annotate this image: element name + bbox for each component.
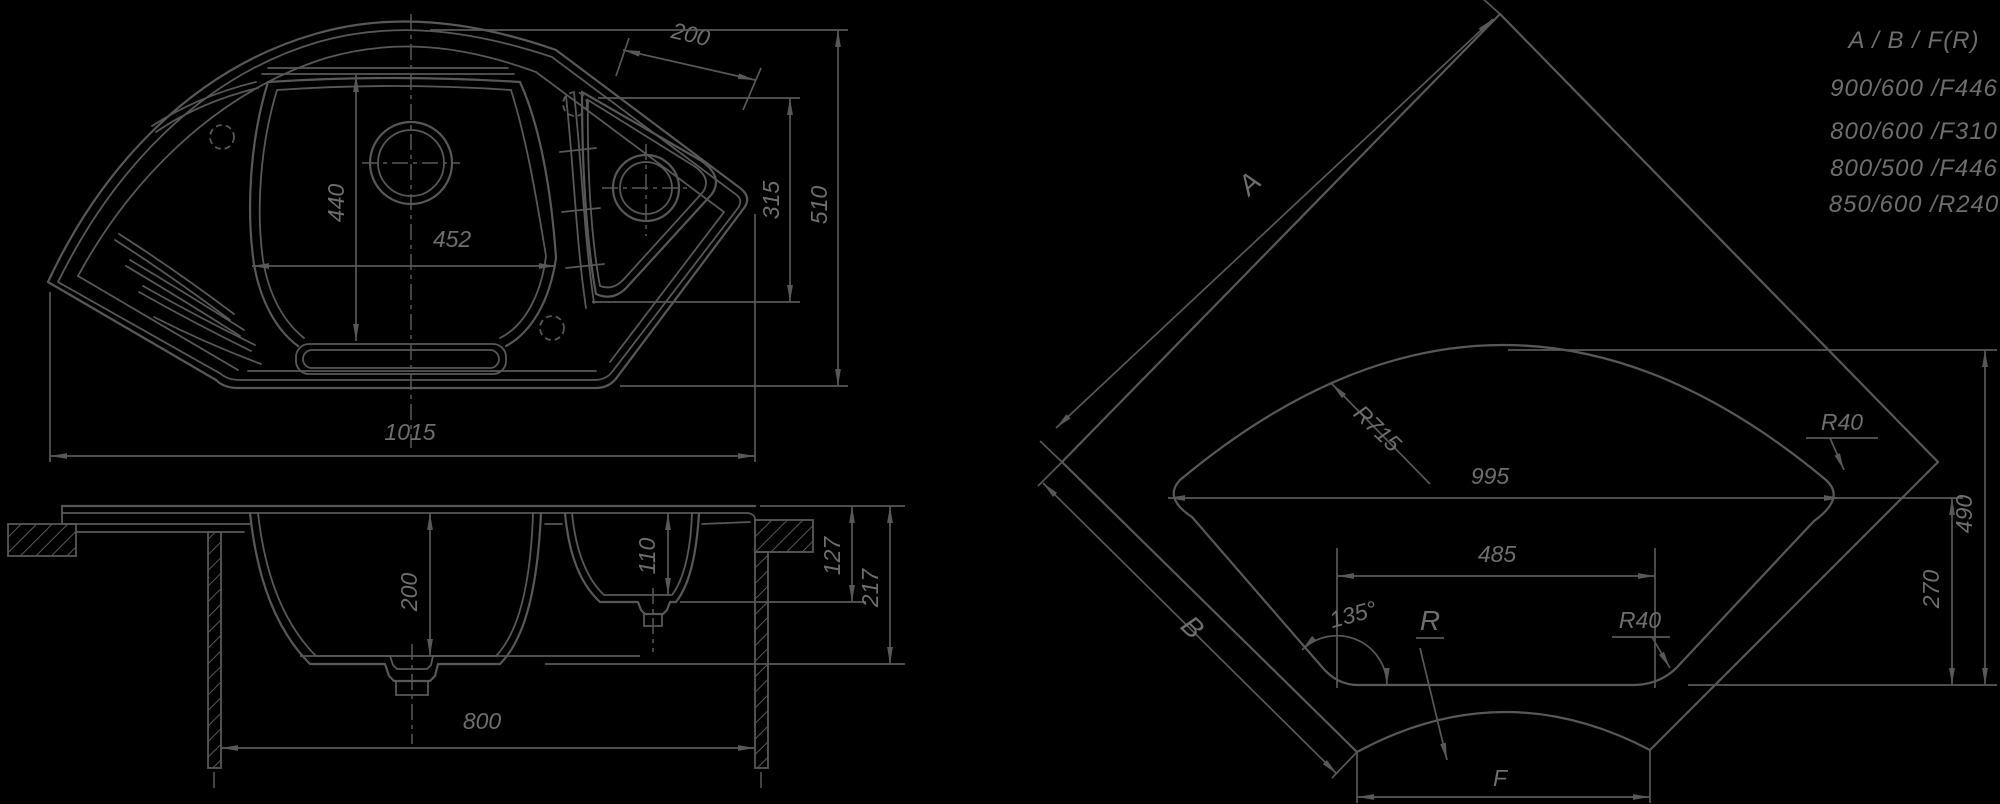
section-rim-underside-right xyxy=(702,522,750,524)
drainer-groove-1b xyxy=(119,234,234,314)
dim-200s-label: 200 xyxy=(396,573,422,613)
dim-135-label: 135° xyxy=(1327,596,1380,633)
dim-b-label: B xyxy=(1175,610,1210,645)
dim-127-label: 127 xyxy=(819,536,845,576)
tap-hole-left xyxy=(210,125,234,149)
size-table: A / B / F(R) 900/600 /F446 800/600 /F310… xyxy=(1829,27,1999,218)
dim-200-label: 200 xyxy=(668,17,712,51)
dim-b-ext-bottom xyxy=(1332,752,1357,778)
sink-footprint xyxy=(1174,345,1834,685)
dim-a-ext-bottom xyxy=(1040,441,1062,462)
dim-800-label: 800 xyxy=(463,708,502,734)
dim-r40-top-label: R40 xyxy=(1821,409,1863,435)
section-rim-right-end xyxy=(748,513,755,520)
drainer-groove-3b xyxy=(143,286,255,345)
section-view: 200 110 127 217 800 xyxy=(8,506,905,792)
dim-r40-top-leader xyxy=(1830,438,1844,470)
dim-r-label: R xyxy=(1420,605,1440,636)
countertop-section-left xyxy=(8,524,76,556)
dim-a-line xyxy=(1056,19,1493,428)
dim-490-label: 490 xyxy=(1951,495,1977,534)
plan-outline-inner xyxy=(58,30,740,380)
dim-110-label: 110 xyxy=(634,537,660,574)
dim-200-ext-left xyxy=(616,38,629,76)
plan-view: 200 440 452 315 510 1015 xyxy=(48,14,848,462)
plan-deck-left-edge xyxy=(78,276,238,370)
size-table-row-3: 800/500 /F446 xyxy=(1830,155,1998,182)
drainer-groove-2b xyxy=(130,260,244,330)
diamond-edge-bottom-right xyxy=(1650,462,1938,750)
dim-200-ext-right xyxy=(743,68,761,110)
dim-200-line xyxy=(623,50,755,80)
technical-drawing-page: 200 440 452 315 510 1015 xyxy=(0,0,2000,804)
dim-217-label: 217 xyxy=(857,568,883,609)
tap-hole-right-bottom xyxy=(540,316,564,340)
size-table-header: A / B / F(R) xyxy=(1846,27,1979,54)
cabinet-wall-right xyxy=(755,552,768,768)
small-bowl-outer xyxy=(582,92,716,297)
size-table-row-1: 900/600 /F446 xyxy=(1830,75,1998,102)
wing-ridge xyxy=(156,88,258,132)
section-small-bowl-outer xyxy=(565,513,699,614)
dim-r715-label: R715 xyxy=(1349,400,1407,457)
diamond-edge-a xyxy=(1062,14,1500,462)
dim-440-label: 440 xyxy=(323,184,349,223)
main-bowl-outer xyxy=(250,78,556,346)
main-bowl-floor-inner xyxy=(303,350,499,368)
dim-a-ext-top xyxy=(1481,0,1500,14)
dim-a-label: A xyxy=(1230,166,1266,203)
size-table-row-2: 800/600 /F310 xyxy=(1830,118,1998,145)
section-small-bowl-inner xyxy=(572,513,692,595)
dim-r40-bottom-label: R40 xyxy=(1619,607,1661,633)
dim-270-label: 270 xyxy=(1918,570,1944,610)
front-arc xyxy=(1357,712,1650,752)
size-table-row-4: 850/600 /R240 xyxy=(1829,191,1999,218)
countertop-section-right xyxy=(755,520,813,552)
dim-485-label: 485 xyxy=(1478,541,1517,567)
divider-tick-1 xyxy=(560,148,596,152)
dim-r-leader xyxy=(1420,648,1447,760)
cabinet-wall-left xyxy=(208,532,221,768)
dim-135-arc xyxy=(1302,636,1387,685)
dim-315-label: 315 xyxy=(758,181,784,220)
divider-tick-2 xyxy=(562,208,600,212)
dim-510-label: 510 xyxy=(806,186,832,225)
dim-b-ext-top xyxy=(1038,462,1062,486)
divider-tick-3 xyxy=(566,264,604,268)
dim-452-label: 452 xyxy=(433,226,472,252)
dim-995-label: 995 xyxy=(1471,463,1510,489)
diamond-edge-b xyxy=(1062,462,1357,752)
sink-technical-drawing: 200 440 452 315 510 1015 xyxy=(0,0,2000,804)
dim-1015-label: 1015 xyxy=(384,419,435,445)
main-bowl-floor-outer xyxy=(296,344,506,374)
dim-f-label: F xyxy=(1493,765,1509,791)
